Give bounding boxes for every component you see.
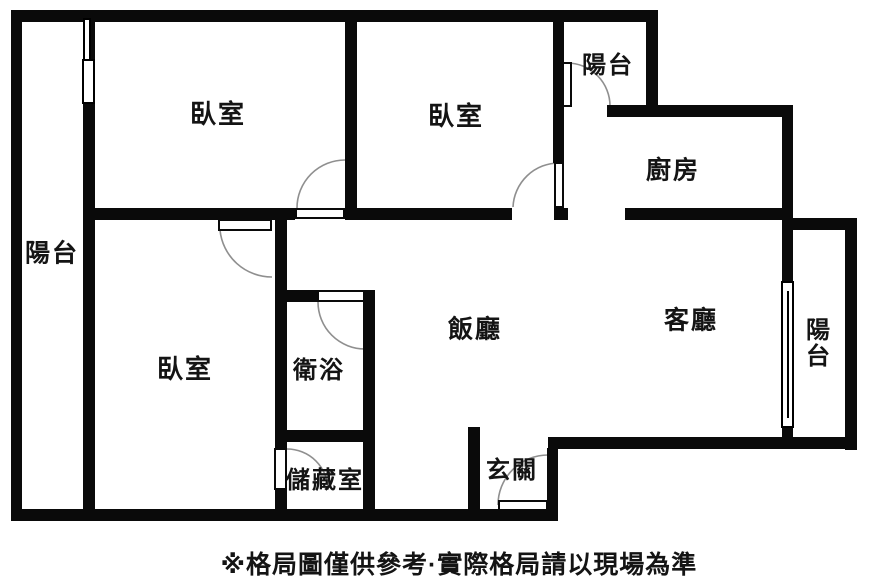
living-balcony-window <box>781 281 794 428</box>
bathroom-door-swing-arc <box>318 302 365 349</box>
room-label-entryway: 玄關 <box>486 458 538 484</box>
floorplan-image: 臥室臥室臥室陽台陽台陽 台廚房客廳飯廳衛浴儲藏室玄關 ※格局圖僅供參考·實際格局… <box>0 0 889 585</box>
door-swing-arcs-layer <box>0 0 889 585</box>
bathroom-bottom-wall <box>275 430 375 442</box>
floorplan: 臥室臥室臥室陽台陽台陽 台廚房客廳飯廳衛浴儲藏室玄關 <box>0 0 889 585</box>
room-label-bedroom-bottom-left: 臥室 <box>157 355 213 383</box>
kitchen-bottom-wall <box>625 208 793 220</box>
living-balcony-window-mullion <box>787 291 789 418</box>
hall-wall-mid <box>345 208 512 220</box>
bedroom3-door-leaf <box>218 219 272 231</box>
room-label-storage-room: 儲藏室 <box>286 468 364 494</box>
room-label-dining-room: 飯廳 <box>448 317 502 344</box>
bedroom1-balcony-window-upper <box>83 18 91 61</box>
room-label-bathroom: 衛浴 <box>293 358 345 384</box>
bath-column-left-wall <box>275 220 287 448</box>
top-balcony-right-wall <box>646 10 658 117</box>
kitchen-top-wall <box>607 105 793 117</box>
disclaimer-caption: ※格局圖僅供參考·實際格局請以現場為準 <box>221 545 698 581</box>
bedroom2-door-leaf <box>554 162 564 208</box>
room-label-balcony-left: 陽台 <box>25 241 79 268</box>
outer-left-wall <box>11 10 22 521</box>
kitchen-right-wall <box>782 105 793 220</box>
room-label-bedroom-top-left: 臥室 <box>190 100 246 128</box>
entry-door-leaf <box>498 500 548 511</box>
bathroom-door-leaf <box>317 290 365 302</box>
bathroom-top-wall <box>287 290 317 302</box>
room-label-balcony-right: 陽 台 <box>806 318 832 370</box>
room-label-balcony-top: 陽台 <box>582 53 634 79</box>
outer-right-wall <box>845 218 857 450</box>
bedroom-divider-wall <box>345 20 357 220</box>
entry-left-wall <box>468 427 480 521</box>
living-bottom-wall <box>548 437 857 449</box>
bedroom1-door-swing-arc <box>297 160 345 208</box>
hall-wall-east <box>554 208 568 220</box>
bath-column-right-wall <box>363 290 375 510</box>
room-label-kitchen: 廚房 <box>646 158 700 185</box>
bedroom2-door-swing-arc <box>513 163 559 207</box>
bedroom1-door-leaf <box>295 208 345 219</box>
entry-right-wall <box>547 448 558 521</box>
top-balcony-door-leaf <box>562 62 572 107</box>
bedroom1-balcony-window-lower <box>82 59 95 104</box>
bedroom3-door-swing-arc <box>220 230 272 277</box>
right-balcony-top-wall <box>793 218 857 230</box>
room-label-bedroom-top-middle: 臥室 <box>428 102 484 130</box>
room-label-living-room: 客廳 <box>664 308 718 335</box>
